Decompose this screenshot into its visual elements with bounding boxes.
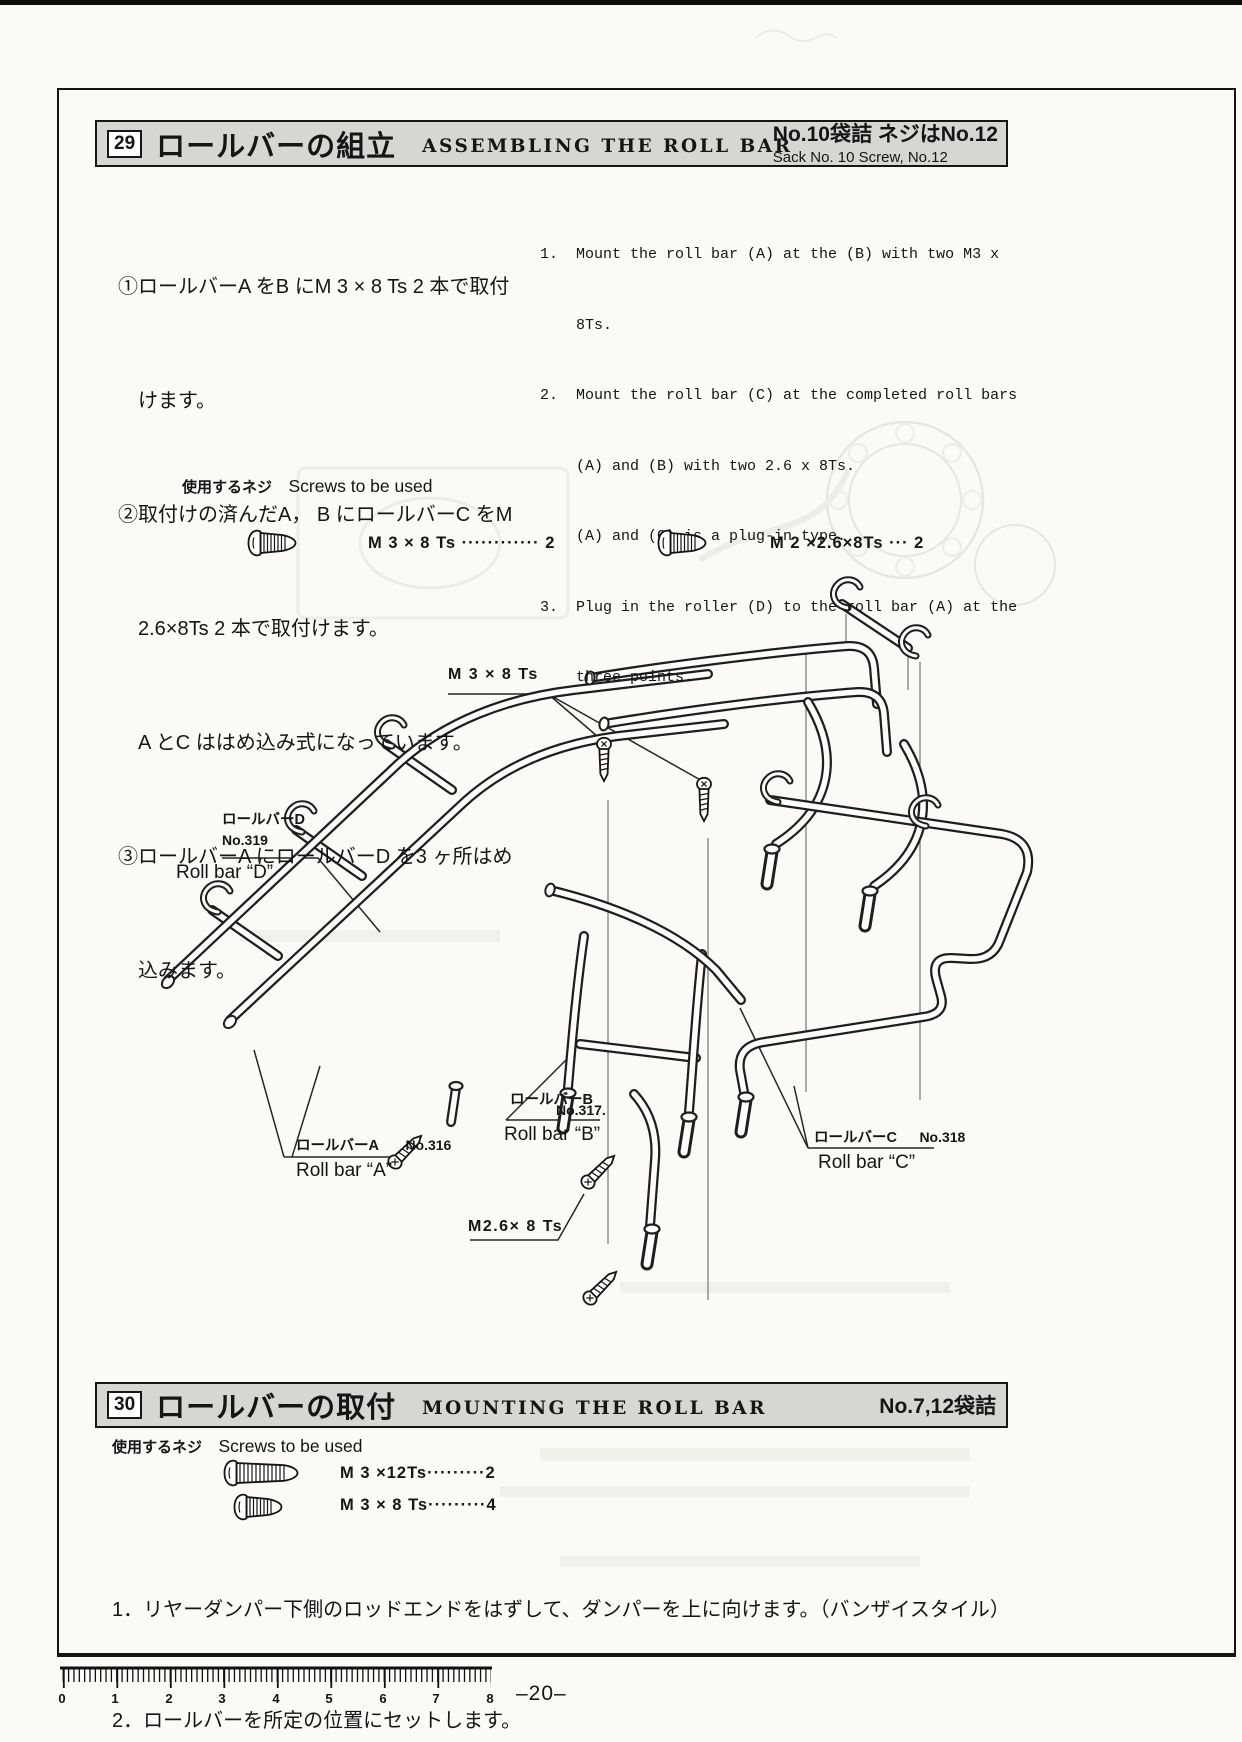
step29-sack-info: No.10袋詰 ネジはNo.12 Sack No. 10 Screw, No.1… [773, 124, 998, 168]
instruction-line: (A) and (B) with two 2.6 x 8Ts. [540, 455, 1017, 479]
diagram-label-bar-a-no: No.316 [405, 1137, 451, 1153]
screw-side-icon [656, 528, 710, 558]
screw-side-icon [246, 528, 300, 558]
step29-screw-row-2 [656, 528, 710, 558]
step29-instructions-jp: ①ロールバーA をB にM 3 × 8 Ts 2 本で取付 けます。 ②取付けの… [118, 192, 512, 1066]
step29-instructions-en: 1. Mount the roll bar (A) at the (B) wit… [540, 196, 1017, 737]
diagram-label-bar-c-en: Roll bar “C” [818, 1152, 915, 1174]
instruction-line: 1. Mount the roll bar (A) at the (B) wit… [540, 243, 1017, 267]
step29-screw-row-1 [246, 528, 300, 558]
diagram-label-bar-a-en: Roll bar “A” [296, 1160, 392, 1182]
screws-header-jp: 使用するネジ [182, 479, 272, 496]
step29-title-en: ASSEMBLING THE ROLL BAR [422, 130, 792, 157]
page-number: –20– [516, 1682, 567, 1706]
diagram-label-bar-d-no: No.319 [222, 832, 268, 848]
step30-sack-info: No.7,12袋詰 [879, 1390, 996, 1420]
instruction-line: 3. Plug in the roller (D) to the roll ba… [540, 596, 1017, 620]
diagram-label-bar-a-jp: ロールバーA [296, 1138, 379, 1154]
diagram-label-bar-d-en: Roll bar “D” [176, 862, 273, 884]
step30-screw1-label: M 3 ×12Ts·········2 [340, 1464, 496, 1483]
instruction-line: 8Ts. [540, 314, 1017, 338]
screw-long-side-icon [222, 1458, 302, 1488]
diagram-label-m26-screw: M2.6× 8 Ts [468, 1218, 563, 1236]
instruction-line: ②取付けの済んだA， B にロールバーC をM [118, 496, 512, 534]
sack-line-en: Sack No. 10 Screw, No.12 [773, 149, 948, 166]
manual-page: 0 1 2 3 4 5 6 7 8 29 ロールバーの組立 ASSEMBLING… [0, 0, 1242, 1742]
sack-line-jp: No.10袋詰 ネジはNo.12 [773, 123, 998, 146]
diagram-label-bar-c: ロールバーC No.318 [814, 1126, 965, 1147]
step30-instructions-jp: 1．リヤーダンパー下側のロッドエンドをはずして、ダンパーを上に向けます。（バンザ… [112, 1518, 1010, 1742]
diagram-label-bar-d-jp: ロールバーD [222, 808, 305, 829]
step29-title-jp: ロールバーの組立 [156, 123, 396, 165]
diagram-label-bar-c-jp: ロールバーC [814, 1130, 897, 1146]
step30-screws-header: 使用するネジ Screws to be used [112, 1436, 362, 1457]
instruction-line: three points. [540, 666, 1017, 690]
diagram-label-bar-c-no: No.318 [919, 1129, 965, 1145]
instruction-line: 2. Mount the roll bar (C) at the complet… [540, 384, 1017, 408]
ruler-number: 0 [58, 1691, 65, 1706]
instruction-line: A とC ははめ込み式になっています。 [118, 724, 512, 762]
step30-header: 30 ロールバーの取付 MOUNTING THE ROLL BAR No.7,1… [95, 1382, 1008, 1428]
diagram-label-bar-b-no: No.317. [556, 1102, 606, 1118]
instruction-line: 2.6×8Ts 2 本で取付けます。 [118, 610, 512, 648]
screws-header-en: Screws to be used [288, 476, 432, 496]
step29-screw2-label: M 2 ×2.6×8Ts ··· 2 [770, 534, 924, 553]
screws-header-jp: 使用するネジ [112, 1439, 202, 1456]
step29-screws-header: 使用するネジ Screws to be used [182, 476, 432, 497]
screws-header-en: Screws to be used [218, 1436, 362, 1456]
step30-number-badge: 30 [107, 1391, 142, 1419]
step30-title-en: MOUNTING THE ROLL BAR [422, 1392, 767, 1419]
diagram-label-m3-screw: M 3 × 8 Ts [448, 666, 539, 684]
diagram-label-bar-b-en: Roll bar “B” [504, 1124, 600, 1146]
step29-screw1-label: M 3 × 8 Ts ············ 2 [368, 534, 555, 553]
step29-number-badge: 29 [107, 130, 142, 158]
roll-bar-c-drawing [544, 774, 1028, 1264]
instruction-line: けます。 [118, 382, 512, 420]
instruction-line: 1．リヤーダンパー下側のロッドエンドをはずして、ダンパーを上に向けます。（バンザ… [112, 1592, 1010, 1629]
instruction-line: ①ロールバーA をB にM 3 × 8 Ts 2 本で取付 [118, 268, 512, 306]
step30-title-jp: ロールバーの取付 [156, 1384, 396, 1426]
instruction-line: 2．ロールバーを所定の位置にセットします。 [112, 1703, 1010, 1740]
diagram-label-bar-a: ロールバーA No.316 [296, 1134, 451, 1155]
step29-header: 29 ロールバーの組立 ASSEMBLING THE ROLL BAR No.1… [95, 120, 1008, 167]
instruction-line: 込みます。 [118, 952, 512, 990]
step30-screw-row-1 [222, 1458, 302, 1488]
step30-screw2-label: M 3 × 8 Ts·········4 [340, 1496, 497, 1515]
